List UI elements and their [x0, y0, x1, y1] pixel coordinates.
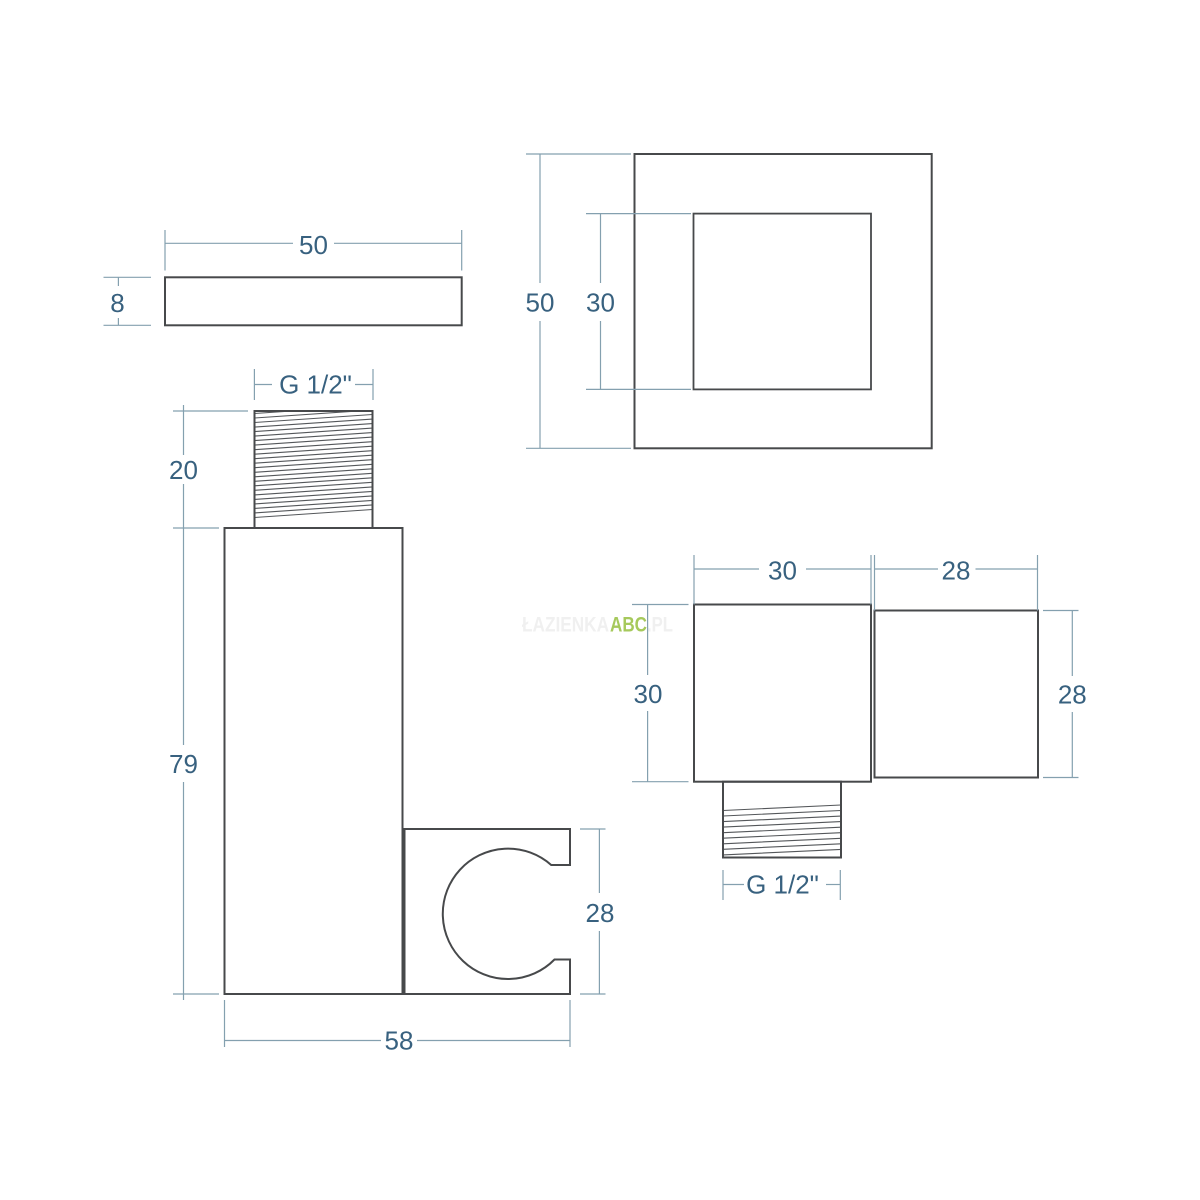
svg-text:G 1/2": G 1/2" — [279, 370, 352, 400]
svg-text:8: 8 — [110, 288, 124, 318]
svg-text:58: 58 — [385, 1026, 414, 1056]
svg-text:ŁAZIENKA: ŁAZIENKA — [522, 613, 609, 637]
svg-text:30: 30 — [586, 288, 615, 318]
svg-text:G 1/2": G 1/2" — [746, 870, 819, 900]
svg-text:28: 28 — [586, 898, 615, 928]
svg-text:30: 30 — [768, 556, 797, 586]
svg-text:30: 30 — [634, 679, 663, 709]
svg-text:50: 50 — [526, 288, 555, 318]
svg-text:28: 28 — [942, 556, 971, 586]
svg-text:ABC: ABC — [610, 613, 647, 637]
svg-text:.PL: .PL — [647, 613, 673, 637]
svg-text:20: 20 — [169, 455, 198, 485]
svg-text:28: 28 — [1058, 680, 1087, 710]
svg-text:50: 50 — [299, 230, 328, 260]
svg-text:79: 79 — [169, 749, 198, 779]
